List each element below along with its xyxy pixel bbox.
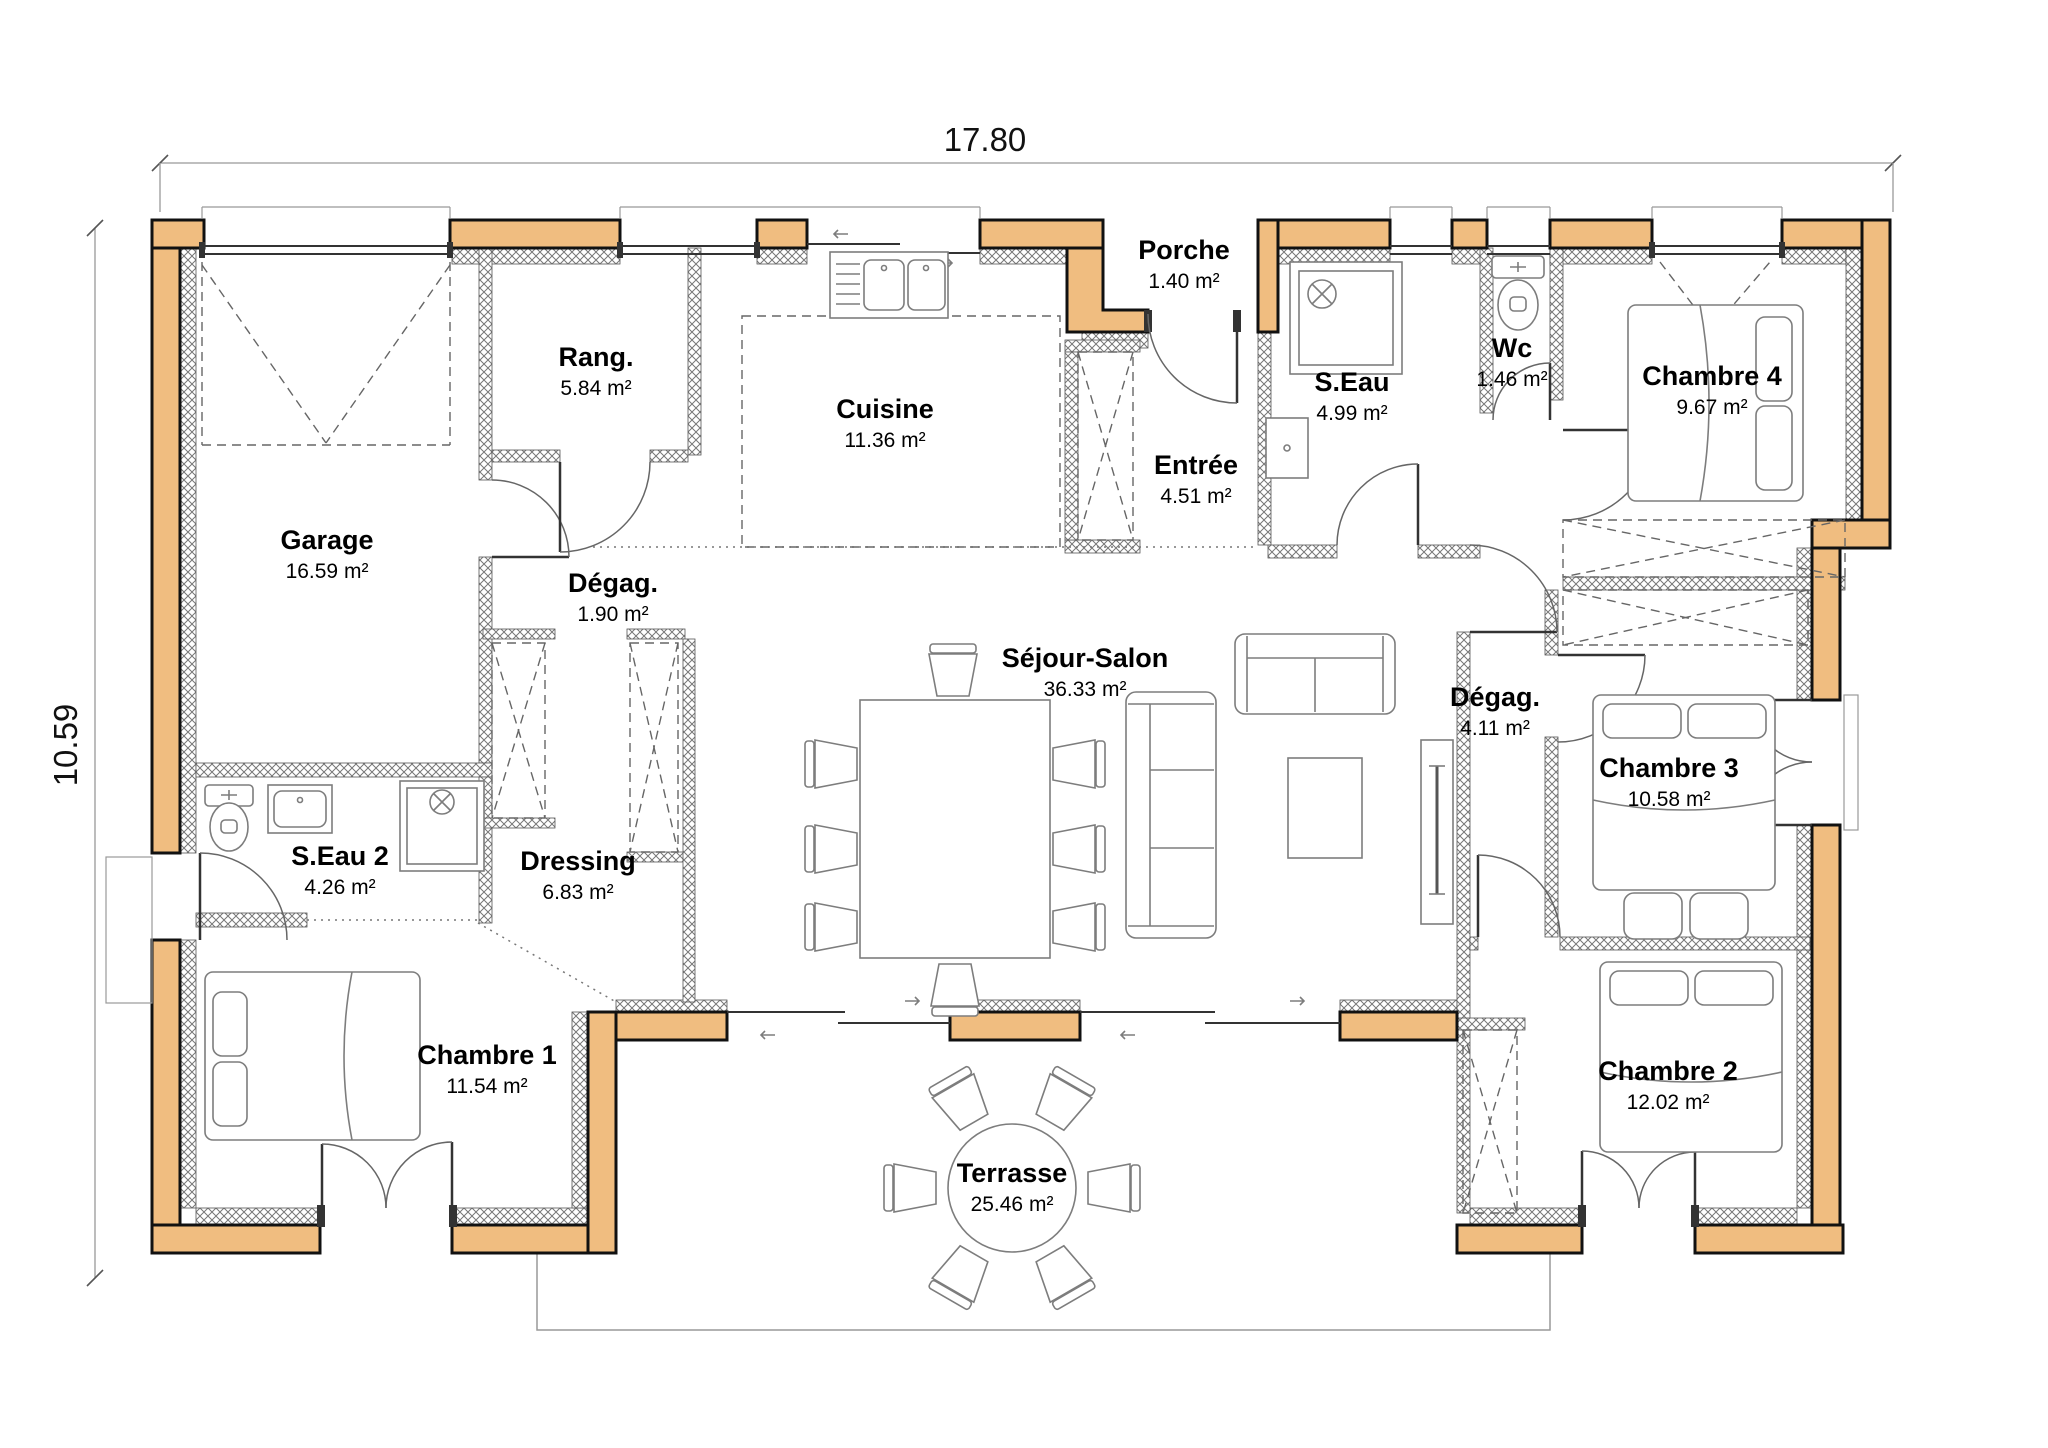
sofa-3seat-icon	[1126, 692, 1216, 938]
floor-plan: 17.80 10.59 Garage16.59 m² Rang.5.84 m² …	[0, 0, 2048, 1448]
room-label-porche: Porche1.40 m²	[1138, 233, 1230, 295]
dining-table-icon	[860, 700, 1050, 958]
bed-chambre3-icon	[1593, 695, 1775, 939]
sofa-2seat-icon	[1235, 634, 1395, 714]
room-label-degag2: Dégag.4.11 m²	[1450, 680, 1540, 742]
room-label-entree: Entrée4.51 m²	[1154, 448, 1238, 510]
door-rangement	[560, 462, 650, 552]
sliding-door-terrace-right	[1080, 997, 1340, 1039]
toilet-wc-icon	[1492, 256, 1544, 330]
room-label-chambre4: Chambre 49.67 m²	[1642, 359, 1782, 421]
tv-cabinet-icon	[1421, 740, 1453, 924]
wardrobe-chambre3	[1563, 590, 1808, 645]
room-label-cuisine: Cuisine11.36 m²	[836, 392, 934, 454]
room-label-seau2: S.Eau 24.26 m²	[291, 839, 389, 901]
room-label-terrasse: Terrasse25.46 m²	[957, 1156, 1068, 1218]
kitchen-sink-icon	[830, 252, 948, 318]
closet-dressing-right	[630, 643, 678, 852]
sink-seau2-icon	[268, 785, 332, 833]
french-door-chambre1	[317, 1142, 457, 1227]
window-seau	[1390, 207, 1452, 254]
sliding-door-terrace-left	[727, 997, 950, 1039]
door-degag-couloir	[1470, 545, 1557, 632]
room-label-rangement: Rang.5.84 m²	[558, 340, 633, 402]
room-label-seau: S.Eau4.99 m²	[1314, 365, 1389, 427]
garage-door-icon	[202, 262, 450, 445]
dimension-height-label: 10.59	[47, 704, 85, 787]
door-garage-degag	[492, 480, 569, 557]
bed-chambre1-icon	[205, 972, 420, 1140]
door-entree-front	[1144, 310, 1241, 403]
dimension-width-label: 17.80	[944, 121, 1027, 159]
room-label-dressing: Dressing6.83 m²	[520, 844, 636, 906]
room-label-garage: Garage16.59 m²	[280, 523, 373, 585]
shower-seau2-icon	[400, 781, 484, 871]
window-garage	[199, 207, 453, 258]
closet-dressing-left	[492, 643, 545, 818]
window-wc	[1487, 207, 1550, 254]
room-label-sejour-salon: Séjour-Salon36.33 m²	[1002, 641, 1169, 703]
door-seau	[1337, 464, 1418, 545]
room-label-degag1: Dégag.1.90 m²	[568, 566, 658, 628]
shower-seau-icon	[1290, 262, 1402, 374]
room-label-chambre3: Chambre 310.58 m²	[1599, 751, 1739, 813]
closet-entree	[1078, 352, 1133, 540]
toilet-seau2-icon	[205, 785, 253, 851]
coffee-table-icon	[1288, 758, 1362, 858]
sink-seau-icon	[1266, 418, 1308, 478]
floor-plan-drawing	[0, 0, 2048, 1448]
room-label-chambre2: Chambre 212.02 m²	[1598, 1054, 1738, 1116]
french-door-chambre2	[1578, 1151, 1699, 1227]
room-label-chambre1: Chambre 111.54 m²	[417, 1038, 557, 1100]
room-label-wc: Wc1.46 m²	[1476, 331, 1547, 393]
closet-chambre2	[1463, 1030, 1517, 1213]
